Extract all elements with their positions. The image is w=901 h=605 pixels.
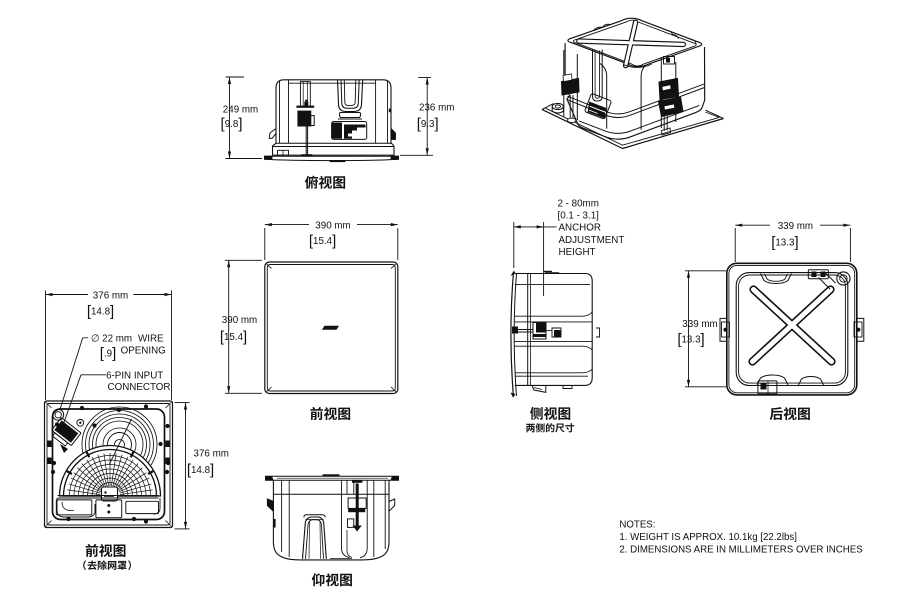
svg-text:1. WEIGHT IS APPROX. 10.1kg [2: 1. WEIGHT IS APPROX. 10.1kg [22.2lbs] — [619, 532, 797, 543]
svg-text:NOTES:: NOTES: — [619, 519, 655, 530]
svg-text:2. DIMENSIONS ARE IN MILLIMETE: 2. DIMENSIONS ARE IN MILLIMETERS OVER IN… — [619, 545, 863, 556]
svg-text:339 mm: 339 mm — [778, 221, 813, 232]
svg-text:WIRE: WIRE — [138, 333, 164, 344]
svg-text:ADJUSTMENT: ADJUSTMENT — [559, 235, 625, 246]
svg-text:∅ 22 mm: ∅ 22 mm — [91, 333, 132, 344]
svg-text:236 mm: 236 mm — [419, 103, 454, 114]
svg-text:[0.1 - 3.1]: [0.1 - 3.1] — [558, 211, 600, 222]
svg-text:249 mm: 249 mm — [223, 105, 258, 116]
svg-text:376 mm: 376 mm — [93, 290, 128, 301]
svg-text:339 mm: 339 mm — [682, 319, 717, 330]
svg-text:390 mm: 390 mm — [315, 220, 350, 231]
svg-text:HEIGHT: HEIGHT — [559, 247, 596, 258]
svg-text:CONNECTOR: CONNECTOR — [108, 382, 171, 393]
svg-text:6-PIN INPUT: 6-PIN INPUT — [106, 370, 163, 381]
svg-text:390 mm: 390 mm — [222, 315, 257, 326]
svg-text:2 - 80mm: 2 - 80mm — [558, 199, 599, 210]
svg-text:OPENING: OPENING — [121, 345, 166, 356]
svg-text:ANCHOR: ANCHOR — [559, 223, 601, 234]
svg-text:376 mm: 376 mm — [194, 448, 229, 459]
